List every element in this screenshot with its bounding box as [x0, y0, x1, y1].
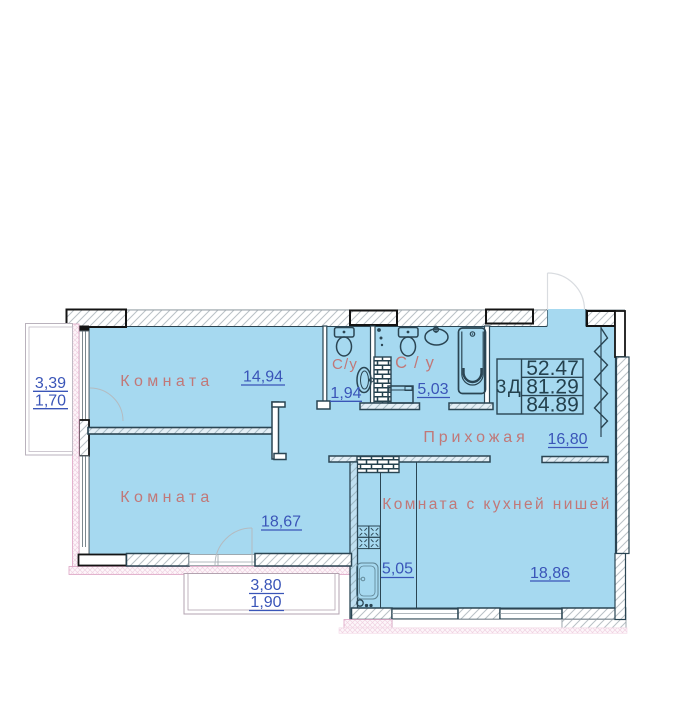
- svg-text:С/у: С/у: [395, 354, 441, 372]
- svg-text:1,94: 1,94: [330, 385, 361, 402]
- svg-text:Прихожая: Прихожая: [423, 429, 528, 446]
- svg-text:84.89: 84.89: [526, 394, 579, 417]
- svg-text:3,39: 3,39: [35, 375, 66, 392]
- svg-text:Комната с кухней нишей: Комната с кухней нишей: [382, 496, 611, 513]
- svg-text:14,94: 14,94: [243, 369, 283, 386]
- svg-text:5,05: 5,05: [382, 561, 413, 578]
- svg-text:3Д: 3Д: [496, 377, 522, 398]
- svg-text:Комната: Комната: [120, 373, 213, 390]
- svg-text:С/у: С/у: [332, 356, 358, 373]
- svg-text:18,67: 18,67: [261, 514, 301, 531]
- svg-text:3,80: 3,80: [250, 577, 281, 594]
- svg-text:Комната: Комната: [120, 489, 213, 506]
- svg-text:1,90: 1,90: [250, 594, 281, 611]
- svg-text:5,03: 5,03: [417, 381, 448, 398]
- svg-text:16,80: 16,80: [547, 431, 587, 448]
- svg-text:18,86: 18,86: [530, 565, 570, 582]
- svg-text:1,70: 1,70: [35, 393, 66, 410]
